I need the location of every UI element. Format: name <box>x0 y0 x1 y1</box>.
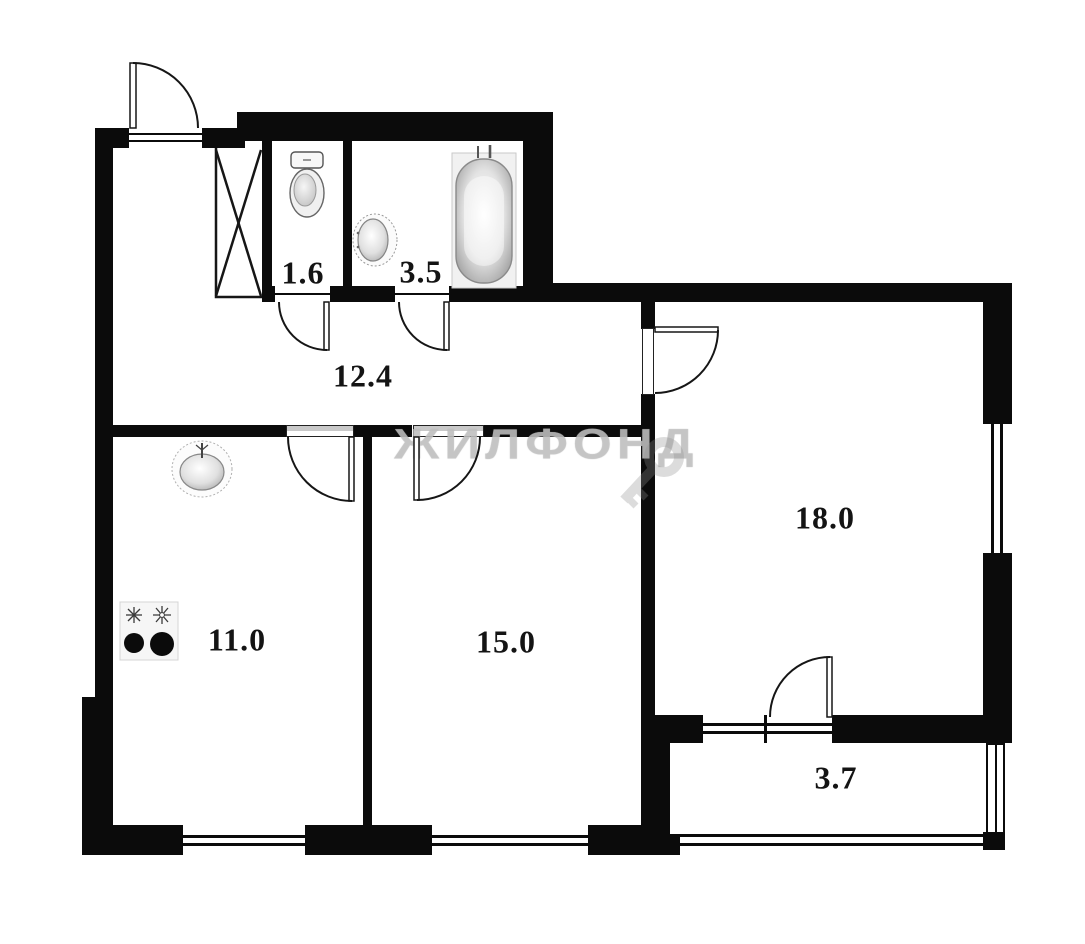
bathroom-door-swing <box>399 302 449 350</box>
washbasin-icon <box>353 214 397 266</box>
wardrobe-cross-icon <box>216 148 262 297</box>
room-label-bathroom: 3.5 <box>400 254 443 291</box>
entrance-door-swing <box>130 63 198 128</box>
burner-dot <box>150 632 174 656</box>
stove-icon <box>120 602 178 660</box>
room-label-kitchen: 11.0 <box>208 622 266 659</box>
key-icon <box>624 442 679 506</box>
kitchen-door-swing <box>288 437 354 501</box>
burner-dot <box>124 633 144 653</box>
room-label-hallway: 12.4 <box>333 358 393 395</box>
room15-door-swing <box>414 437 480 500</box>
wc-door-swing <box>279 302 329 350</box>
room-label-room18: 18.0 <box>795 500 855 537</box>
room-label-room15: 15.0 <box>476 624 536 661</box>
floor-plan: ЖИЛФОНД <box>0 0 1085 944</box>
balcony-door-swing <box>770 657 832 717</box>
room-label-balcony: 3.7 <box>815 760 858 797</box>
floorplan-linework <box>0 0 1085 944</box>
room18-door-swing <box>655 327 718 393</box>
toilet-icon <box>290 152 324 217</box>
kitchen-sink-icon <box>172 441 232 497</box>
bathtub-icon <box>452 145 516 288</box>
room-label-wc: 1.6 <box>282 255 325 292</box>
